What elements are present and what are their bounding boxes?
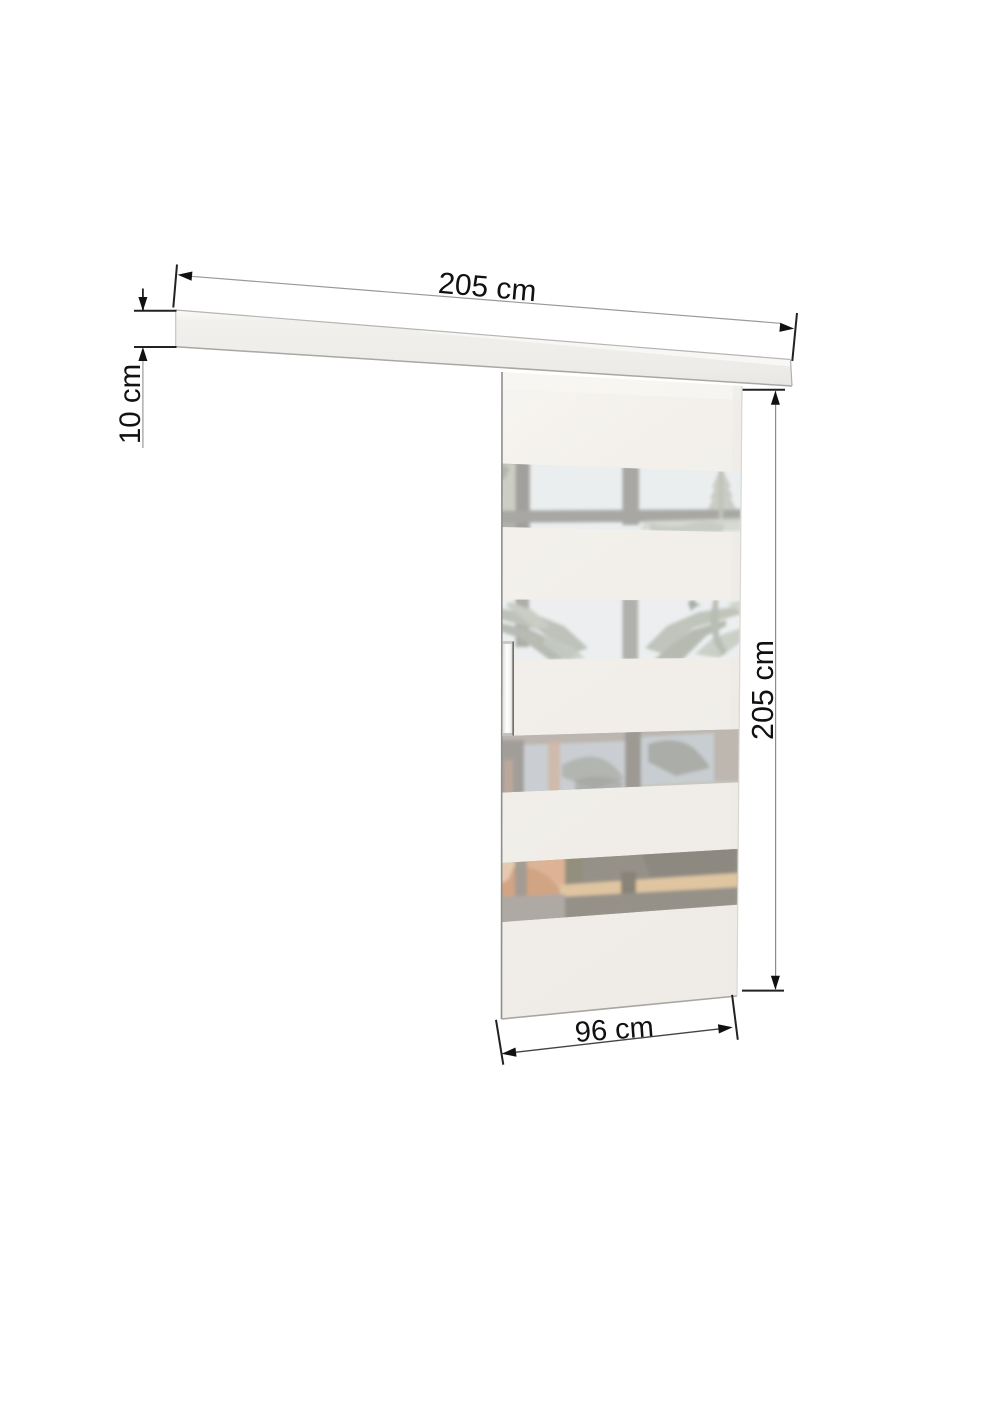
svg-text:10 cm: 10 cm <box>114 364 147 444</box>
svg-text:96 cm: 96 cm <box>574 1011 655 1049</box>
svg-text:205 cm: 205 cm <box>746 640 780 740</box>
